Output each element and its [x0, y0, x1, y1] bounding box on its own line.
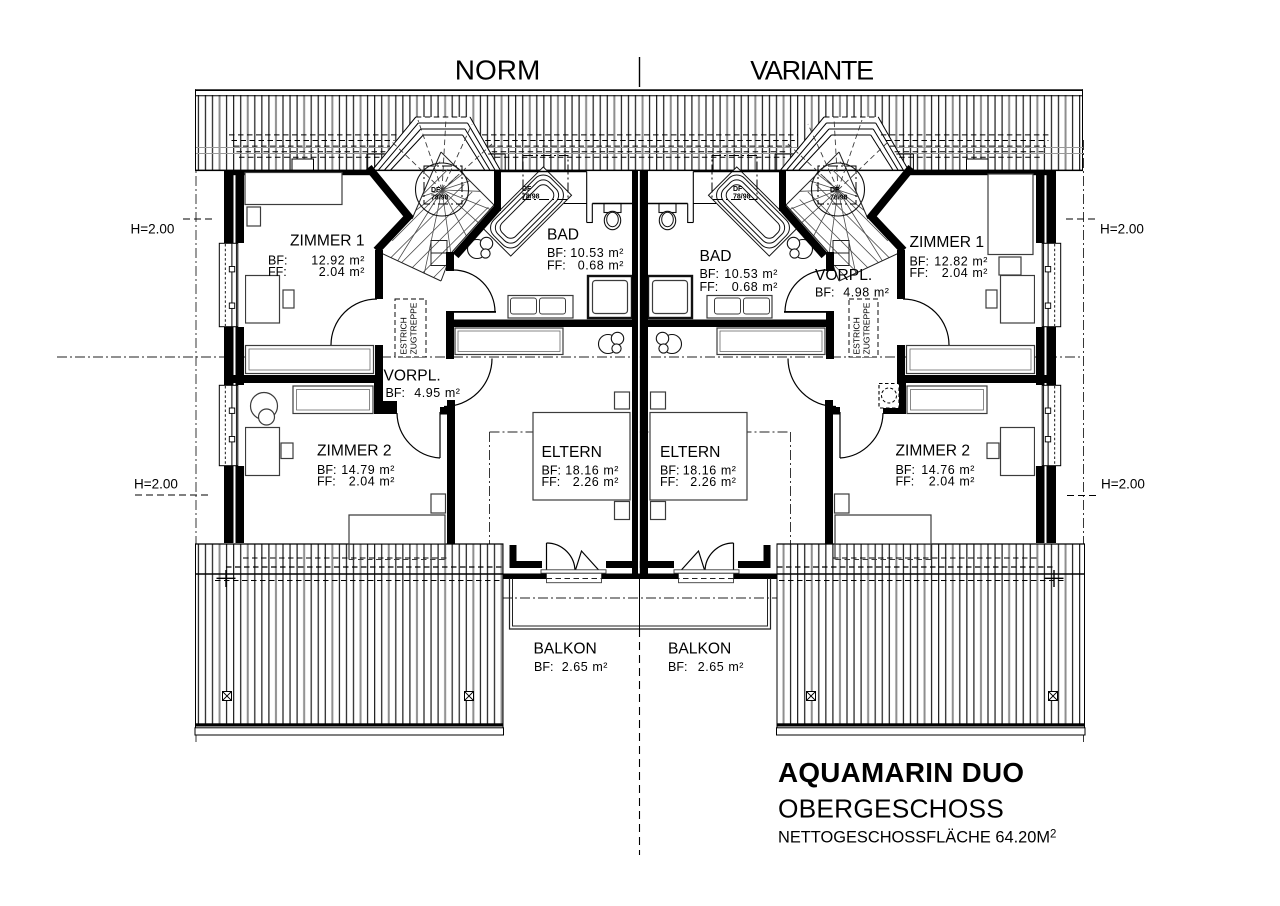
svg-text:2.04 m²: 2.04 m² [319, 265, 365, 279]
svg-text:DF: DF [522, 186, 532, 193]
svg-text:BAD: BAD [547, 227, 579, 244]
svg-text:BAD: BAD [700, 248, 732, 265]
svg-text:FF:: FF: [542, 475, 561, 489]
svg-text:ESTRICH: ESTRICH [852, 317, 862, 354]
svg-text:VORPL.: VORPL. [384, 368, 441, 385]
svg-text:DF: DF [733, 186, 743, 193]
svg-text:4.98 m²: 4.98 m² [843, 285, 889, 299]
svg-text:DF: DF [431, 187, 441, 194]
svg-text:2.04 m²: 2.04 m² [349, 474, 395, 488]
svg-text:NORM: NORM [455, 55, 541, 86]
svg-text:BF:: BF: [668, 660, 687, 674]
svg-text:H=2.00: H=2.00 [131, 222, 175, 237]
svg-text:ZIMMER 1: ZIMMER 1 [910, 234, 985, 251]
svg-text:2.26 m²: 2.26 m² [690, 475, 736, 489]
svg-text:BF:: BF: [386, 386, 405, 400]
svg-text:78/98: 78/98 [830, 195, 848, 202]
svg-text:OBERGESCHOSS: OBERGESCHOSS [778, 794, 1004, 824]
svg-text:FF:: FF: [896, 474, 915, 488]
svg-text:ZUGTREPPE: ZUGTREPPE [862, 302, 872, 354]
svg-text:AQUAMARIN DUO: AQUAMARIN DUO [778, 757, 1024, 788]
svg-text:FF:: FF: [317, 474, 336, 488]
svg-text:BALKON: BALKON [534, 641, 597, 658]
svg-text:0.68 m²: 0.68 m² [732, 280, 778, 294]
svg-text:2.04 m²: 2.04 m² [929, 474, 975, 488]
svg-text:FF:: FF: [547, 258, 566, 272]
svg-text:NETTOGESCHOSSFLÄCHE 64.20M2: NETTOGESCHOSSFLÄCHE 64.20M2 [778, 829, 1056, 847]
svg-text:2.65 m²: 2.65 m² [562, 660, 608, 674]
svg-text:2.65 m²: 2.65 m² [698, 660, 744, 674]
svg-text:ESTRICH: ESTRICH [399, 317, 409, 354]
svg-text:FF:: FF: [660, 475, 679, 489]
svg-text:78/98: 78/98 [522, 194, 540, 201]
svg-text:2.26 m²: 2.26 m² [573, 475, 619, 489]
svg-text:2.04 m²: 2.04 m² [942, 266, 988, 280]
svg-text:ELTERN: ELTERN [660, 444, 720, 461]
svg-text:FF:: FF: [268, 265, 287, 279]
svg-text:ELTERN: ELTERN [542, 444, 602, 461]
svg-text:VARIANTE: VARIANTE [750, 56, 873, 86]
svg-text:DF: DF [830, 187, 840, 194]
svg-text:ZIMMER 2: ZIMMER 2 [317, 442, 392, 459]
svg-text:4.95 m²: 4.95 m² [414, 386, 460, 400]
svg-text:H=2.00: H=2.00 [1101, 477, 1145, 492]
svg-text:78/98: 78/98 [431, 195, 449, 202]
svg-text:BALKON: BALKON [668, 641, 731, 658]
svg-text:78/98: 78/98 [733, 194, 751, 201]
svg-text:ZIMMER 2: ZIMMER 2 [896, 442, 971, 459]
svg-text:FF:: FF: [700, 280, 719, 294]
svg-text:BF:: BF: [815, 285, 834, 299]
svg-text:FF:: FF: [910, 266, 929, 280]
svg-text:BF:: BF: [534, 660, 553, 674]
svg-text:ZUGTREPPE: ZUGTREPPE [409, 302, 419, 354]
svg-text:H=2.00: H=2.00 [134, 477, 178, 492]
svg-text:H=2.00: H=2.00 [1100, 222, 1144, 237]
svg-text:0.68 m²: 0.68 m² [578, 258, 624, 272]
svg-text:ZIMMER 1: ZIMMER 1 [290, 232, 365, 249]
svg-text:VORPL.: VORPL. [815, 267, 872, 284]
